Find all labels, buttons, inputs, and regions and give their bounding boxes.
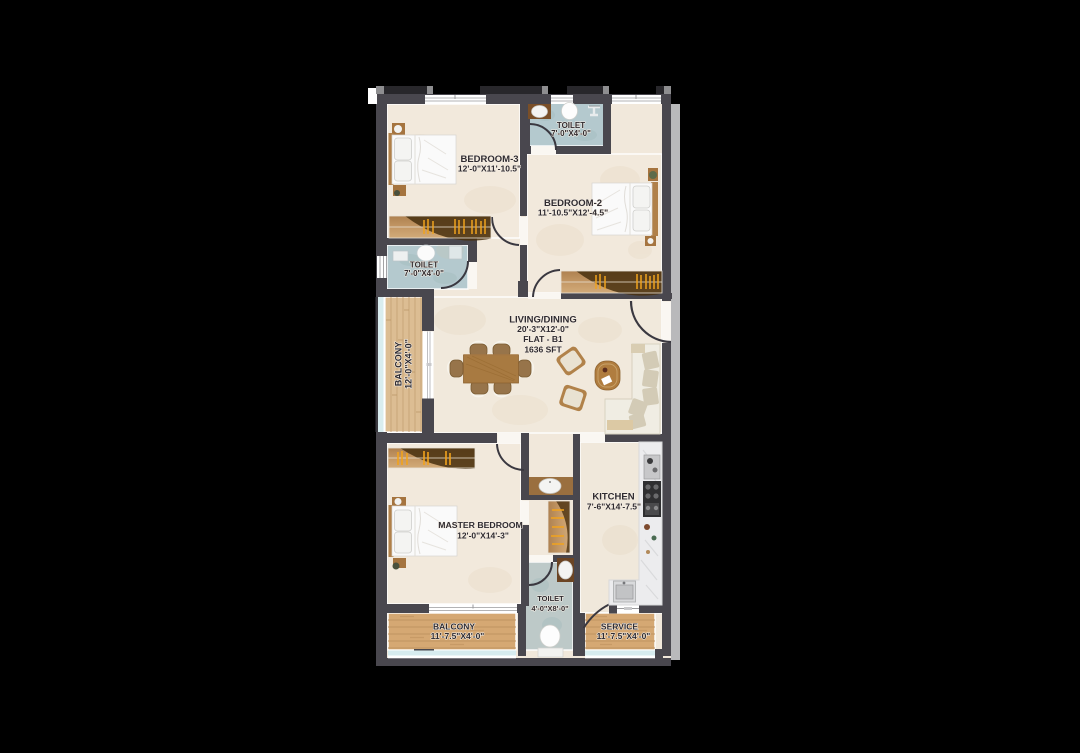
svg-text:12'-0"X11'-10.5": 12'-0"X11'-10.5" — [458, 163, 521, 173]
svg-text:1636 SFT: 1636 SFT — [524, 345, 562, 355]
svg-text:BALCONY: BALCONY — [433, 622, 475, 632]
svg-text:7'-6"X14'-7.5": 7'-6"X14'-7.5" — [587, 502, 641, 512]
svg-text:11'-7.5"X4'-0": 11'-7.5"X4'-0" — [431, 631, 485, 641]
svg-text:11'-10.5"X12'-4.5": 11'-10.5"X12'-4.5" — [538, 208, 608, 218]
svg-text:7'-0"X4'-0": 7'-0"X4'-0" — [551, 129, 591, 138]
svg-text:20'-3"X12'-0": 20'-3"X12'-0" — [517, 324, 569, 334]
svg-text:SERVICE: SERVICE — [601, 622, 638, 632]
svg-text:MASTER BEDROOM: MASTER BEDROOM — [438, 520, 522, 530]
svg-text:11'-7.5"X4'-0": 11'-7.5"X4'-0" — [597, 631, 651, 641]
svg-text:12'-0"X14'-3": 12'-0"X14'-3" — [457, 531, 509, 541]
svg-text:12'-0"X4'-0": 12'-0"X4'-0" — [404, 339, 414, 389]
svg-text:TOILET: TOILET — [537, 594, 564, 603]
svg-text:4'-0"X8'-0": 4'-0"X8'-0" — [531, 604, 569, 613]
svg-text:7'-0"X4'-0": 7'-0"X4'-0" — [404, 269, 444, 278]
svg-text:FLAT - B1: FLAT - B1 — [523, 334, 563, 344]
svg-text:BALCONY: BALCONY — [394, 342, 404, 387]
